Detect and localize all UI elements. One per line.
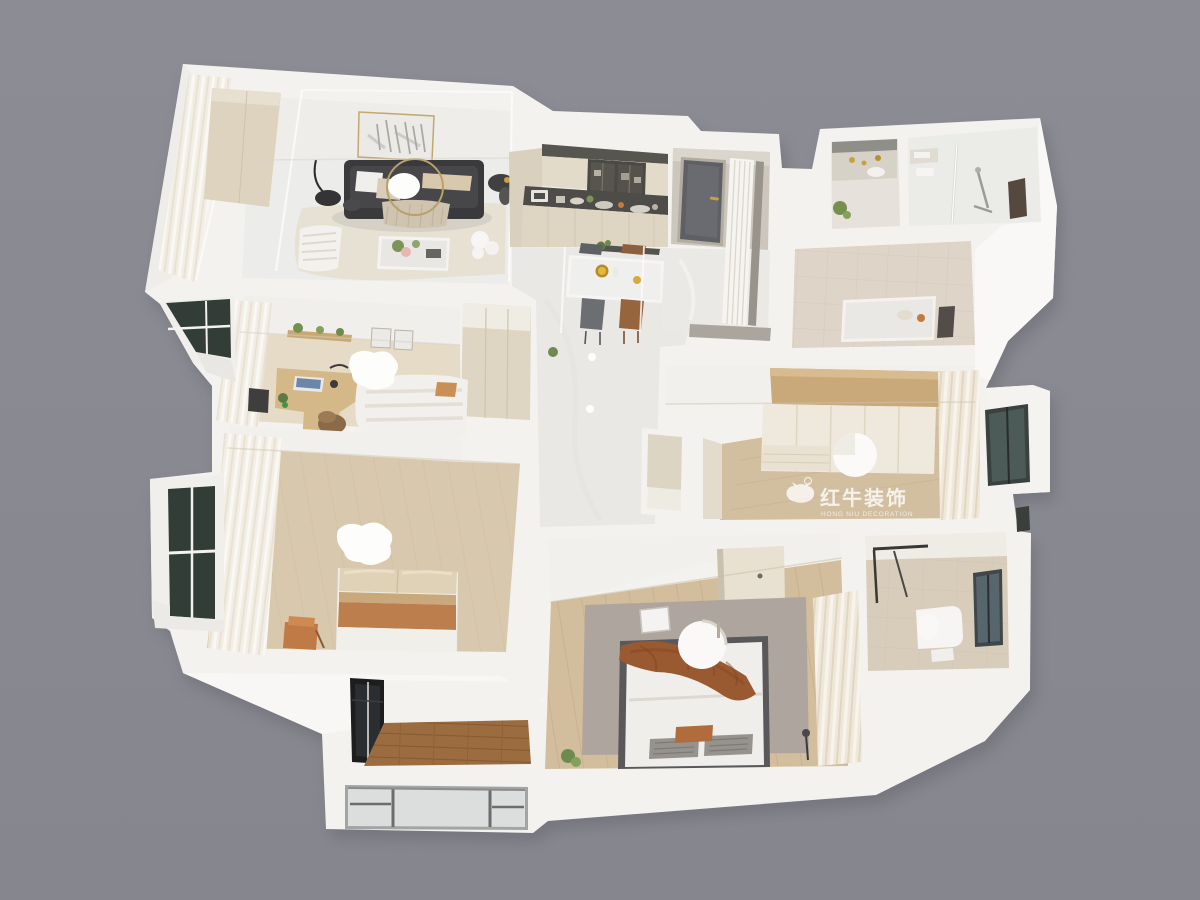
svg-text:HONG NIU DECORATION: HONG NIU DECORATION — [821, 511, 913, 518]
svg-text:红牛装饰: 红牛装饰 — [820, 486, 908, 510]
